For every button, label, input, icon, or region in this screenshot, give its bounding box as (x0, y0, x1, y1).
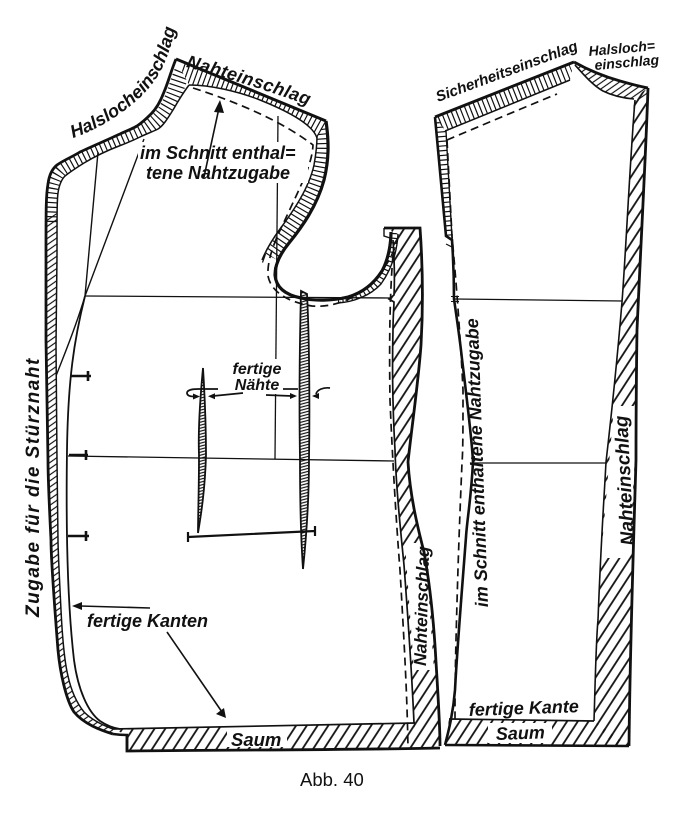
svg-text:fertige Kanten: fertige Kanten (87, 611, 208, 631)
svg-text:Abb. 40: Abb. 40 (300, 769, 364, 790)
svg-text:fertige: fertige (233, 361, 282, 378)
svg-text:tene Nahtzugabe: tene Nahtzugabe (146, 163, 290, 183)
svg-text:Saum: Saum (231, 729, 281, 750)
svg-text:Zugabe für die Stürznaht: Zugabe für die Stürznaht (23, 357, 44, 618)
svg-text:Saum: Saum (495, 722, 545, 744)
svg-text:fertige Kante: fertige Kante (468, 696, 579, 720)
svg-text:im Schnitt enthal=: im Schnitt enthal= (140, 143, 296, 163)
svg-text:Nähte: Nähte (235, 377, 280, 394)
svg-text:Nahteinschlag: Nahteinschlag (410, 546, 433, 666)
